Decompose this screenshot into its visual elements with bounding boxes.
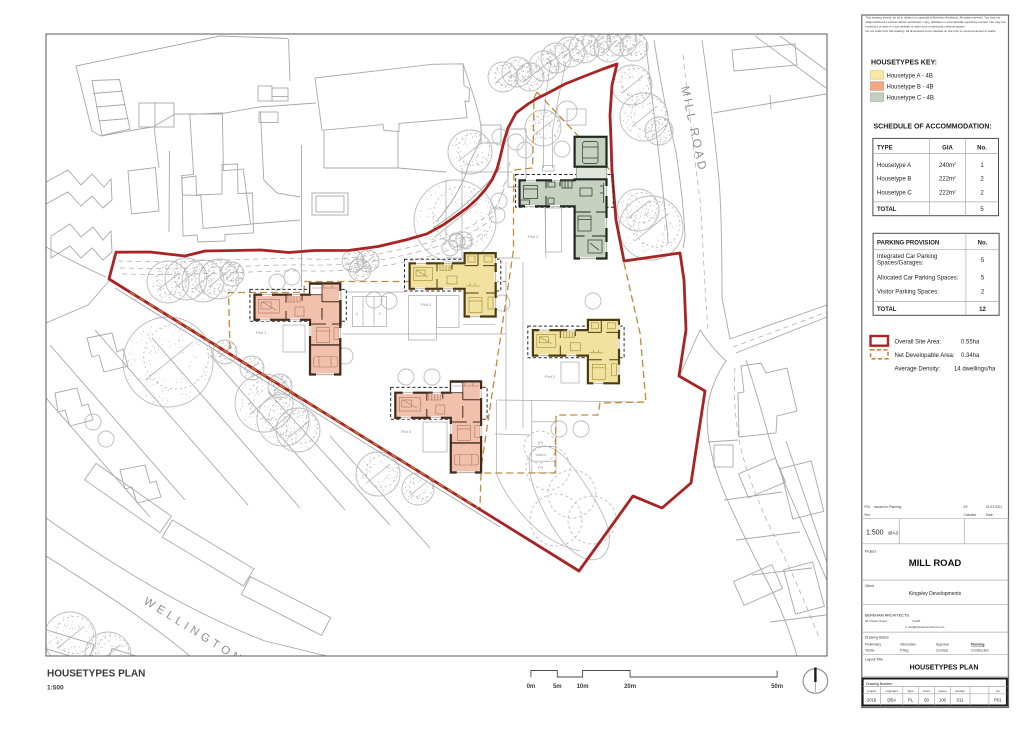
svg-text:Visitor Parking Spaces:: Visitor Parking Spaces:: [877, 290, 939, 296]
svg-text:20m: 20m: [624, 684, 636, 690]
svg-text:Overall Site Area:: Overall Site Area:: [895, 340, 942, 346]
svg-text:MILL ROAD: MILL ROAD: [909, 558, 962, 569]
svg-text:222m2: 222m2: [939, 176, 956, 183]
svg-text:transmit it or store it in any: transmit it or store it in any website o…: [866, 24, 966, 28]
svg-text:1:500: 1:500: [866, 530, 884, 537]
svg-text:Average Density:: Average Density:: [895, 367, 941, 373]
svg-text:100: 100: [939, 698, 947, 703]
svg-text:PARKING PROVISION: PARKING PROVISION: [877, 241, 939, 247]
svg-text:level: level: [923, 689, 930, 693]
svg-text:Spaces/Garages:: Spaces/Garages:: [877, 261, 924, 267]
svg-text:Do not scale from this drawing: Do not scale from this drawing. All dime…: [866, 29, 997, 33]
svg-text:TOTAL: TOTAL: [877, 307, 897, 313]
svg-text:Kingsley Developments: Kingsley Developments: [909, 591, 962, 597]
svg-text:PL: PL: [908, 698, 914, 703]
svg-text:Housetype B - 4B: Housetype B - 4B: [887, 85, 934, 91]
svg-text:Net Developable Area:: Net Developable Area:: [895, 353, 955, 359]
svg-text:Rev: Rev: [865, 513, 871, 517]
svg-text:Plot 2: Plot 2: [421, 302, 432, 307]
svg-text:TYPE: TYPE: [877, 146, 893, 152]
svg-text:Client: Client: [865, 584, 874, 588]
svg-text:DBA: DBA: [887, 698, 896, 703]
svg-text:P.Reg: P.Reg: [900, 649, 909, 653]
svg-text:Drawing Number: Drawing Number: [866, 682, 893, 686]
svg-text:222m2: 222m2: [939, 190, 956, 197]
svg-text:40 Charles Street: 40 Charles Street: [865, 619, 887, 623]
svg-text:(P): (P): [538, 440, 544, 445]
svg-text:GIA: GIA: [942, 146, 953, 152]
svg-text:Contract: Contract: [936, 649, 948, 653]
svg-text:HOUSETYPES PLAN: HOUSETYPES PLAN: [910, 665, 979, 672]
svg-text:Information: Information: [900, 643, 916, 647]
svg-text:This drawing should not be in: This drawing should not be in relation t…: [866, 16, 1001, 20]
svg-text:0.34ha: 0.34ha: [961, 353, 980, 359]
svg-text:rev: rev: [996, 689, 1001, 693]
svg-text:@A3: @A3: [888, 531, 899, 536]
svg-text:Tender: Tender: [865, 649, 876, 653]
svg-text:(V): (V): [538, 465, 544, 470]
svg-text:00: 00: [924, 698, 929, 703]
svg-text:Housetype B: Housetype B: [877, 177, 911, 183]
svg-text:0.55ha: 0.55ha: [961, 340, 980, 346]
svg-text:Housetype A - 4B: Housetype A - 4B: [887, 74, 933, 80]
svg-text:Drawing Status: Drawing Status: [865, 636, 889, 640]
svg-text:No.: No.: [977, 146, 987, 152]
svg-text:Integrated Car Parking: Integrated Car Parking: [877, 254, 937, 260]
svg-text:Approval: Approval: [936, 643, 949, 647]
svg-text:number: number: [955, 689, 965, 693]
svg-text:Housetype A: Housetype A: [877, 163, 911, 169]
svg-text:Preliminary: Preliminary: [865, 643, 881, 647]
svg-text:50m: 50m: [771, 684, 783, 690]
svg-text:Checked: Checked: [964, 513, 977, 517]
svg-text:BERKHAM ARCHITECTS: BERKHAM ARCHITECTS: [865, 614, 909, 618]
svg-text:visitor: visitor: [536, 452, 547, 457]
svg-text:2018: 2018: [867, 698, 877, 703]
svg-text:0m: 0m: [527, 684, 536, 690]
svg-text:P01: P01: [865, 505, 871, 509]
svg-text:1:500: 1:500: [47, 685, 64, 692]
svg-text:Plot 3: Plot 3: [545, 374, 556, 379]
svg-text:No.: No.: [978, 241, 988, 247]
svg-text:Housetype C: Housetype C: [877, 191, 912, 197]
svg-text:Issued for Planning: Issued for Planning: [874, 505, 902, 509]
svg-text:Housetype C - 4B: Housetype C - 4B: [887, 96, 934, 102]
svg-text:Date: Date: [986, 513, 993, 517]
svg-text:TOTAL: TOTAL: [877, 207, 897, 213]
svg-text:Project: Project: [865, 550, 876, 554]
svg-text:adapt without an express writt: adapt without an express written permiss…: [866, 20, 1007, 24]
svg-text:series: series: [938, 689, 947, 693]
svg-text:project: project: [867, 689, 876, 693]
svg-text:5m: 5m: [553, 684, 562, 690]
svg-text:Plot 4: Plot 4: [528, 234, 539, 239]
svg-text:e: info@berkhamarchitects.com: e: info@berkhamarchitects.com: [905, 625, 945, 629]
svg-text:HOUSETYPES KEY:: HOUSETYPES KEY:: [871, 60, 937, 67]
svg-text:Plot 5: Plot 5: [401, 429, 412, 434]
svg-text:Plot 1: Plot 1: [256, 330, 267, 335]
svg-text:Allocated Car Parking Spaces:: Allocated Car Parking Spaces:: [877, 276, 959, 282]
svg-text:14 dwellings/ha: 14 dwellings/ha: [954, 367, 996, 373]
svg-text:01.03.2021: 01.03.2021: [986, 505, 1002, 509]
svg-text:10m: 10m: [577, 684, 589, 690]
svg-text:HOUSETYPES PLAN: HOUSETYPES PLAN: [47, 669, 145, 680]
svg-text:011: 011: [957, 698, 964, 703]
svg-text:Construction: Construction: [971, 649, 989, 653]
svg-text:SCHEDULE OF ACCOMMODATION:: SCHEDULE OF ACCOMMODATION:: [874, 124, 992, 131]
svg-text:P01: P01: [994, 698, 1002, 703]
svg-text:Planning: Planning: [971, 643, 985, 647]
svg-text:Cardiff: Cardiff: [912, 619, 920, 623]
svg-text:Layout Title: Layout Title: [865, 658, 883, 662]
svg-text:originator: originator: [885, 689, 898, 693]
svg-text:12: 12: [979, 307, 986, 313]
svg-text:240m2: 240m2: [939, 162, 956, 169]
svg-text:Type: Type: [907, 689, 914, 693]
